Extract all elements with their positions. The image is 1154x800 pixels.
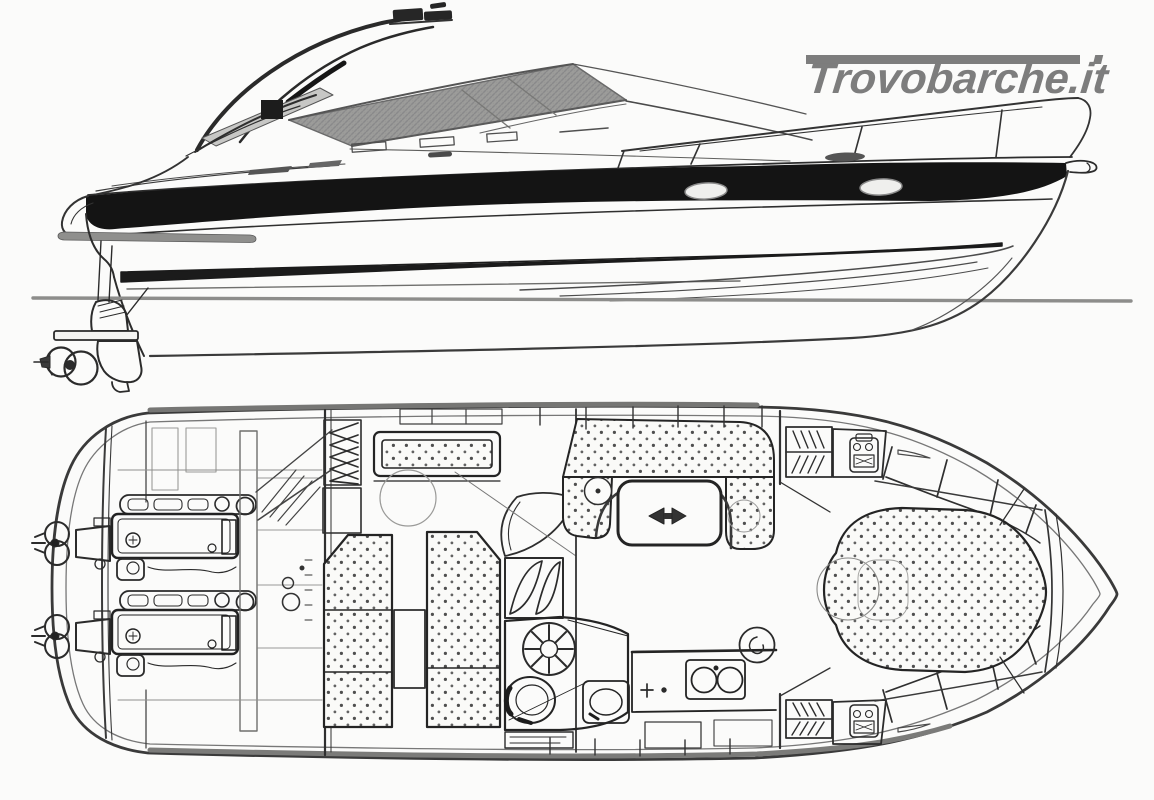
svg-text:Trovobarche.it: Trovobarche.it: [805, 55, 1112, 103]
